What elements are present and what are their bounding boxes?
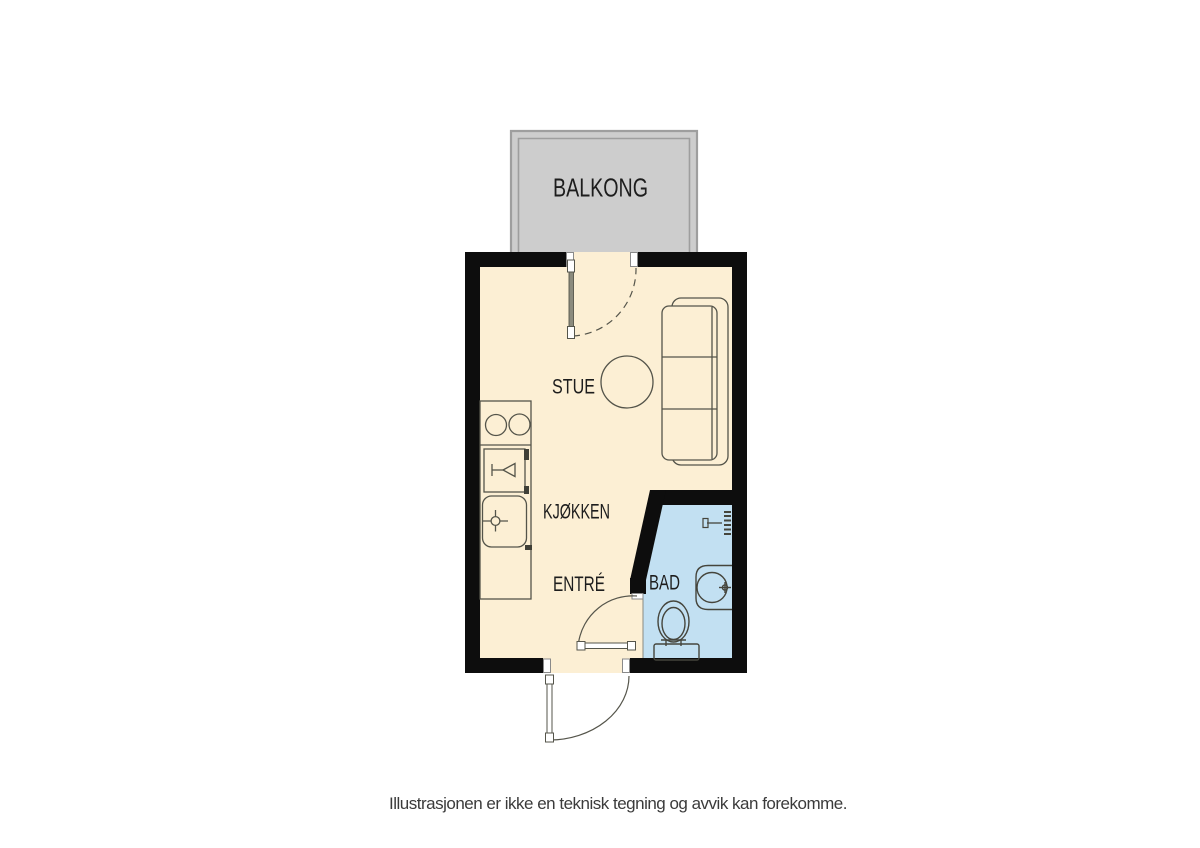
wall-right	[732, 252, 747, 673]
wall-bottom-left	[465, 658, 543, 673]
balcony-door-leaf	[569, 271, 574, 327]
bathroom-label: BAD	[649, 572, 680, 595]
cabinet-handle-icon	[525, 545, 532, 550]
balcony-door-jamb-right	[631, 253, 638, 267]
entrance-door-swing-arc	[550, 676, 630, 740]
bathroom-door-leaf-cap	[628, 642, 636, 651]
entrance-door-jamb-left	[544, 659, 551, 673]
bathroom-door-leaf	[578, 643, 635, 649]
floorplan-page: BALKONG	[0, 0, 1200, 848]
entrance-door-leaf-cap	[546, 675, 554, 684]
wall-bathroom-door-stub	[630, 578, 646, 594]
sofa	[662, 298, 728, 465]
entrance-door-leaf	[547, 676, 552, 740]
cabinet-handle-icon	[524, 486, 529, 494]
bathroom-door-leaf-cap	[577, 642, 585, 651]
entrance-door-leaf-cap	[546, 733, 554, 742]
cabinet-handle-icon	[524, 449, 529, 460]
entrance-door-jamb-right	[623, 659, 630, 673]
disclaimer-caption: Illustrasjonen er ikke en teknisk tegnin…	[18, 794, 1200, 814]
wall-top-right	[638, 252, 747, 267]
floorplan-drawing: BALKONG	[0, 0, 1200, 848]
balcony-doorway-floor	[566, 252, 638, 268]
wall-left	[465, 252, 480, 673]
entrance-door	[546, 675, 630, 742]
balcony-door-leaf-cap	[568, 327, 575, 339]
entry-label: ENTRÉ	[553, 573, 605, 596]
entrance-doorway-floor	[543, 658, 630, 673]
round-table	[601, 356, 653, 408]
balcony: BALKONG	[511, 131, 697, 253]
balcony-door-leaf-cap	[568, 260, 575, 272]
living-room-label: STUE	[552, 376, 595, 399]
kitchen-label: KJØKKEN	[543, 501, 610, 524]
sofa-seat	[662, 306, 717, 460]
kitchen-counter	[480, 401, 532, 599]
wall-top-left	[465, 252, 566, 267]
balcony-label: BALKONG	[553, 175, 648, 203]
